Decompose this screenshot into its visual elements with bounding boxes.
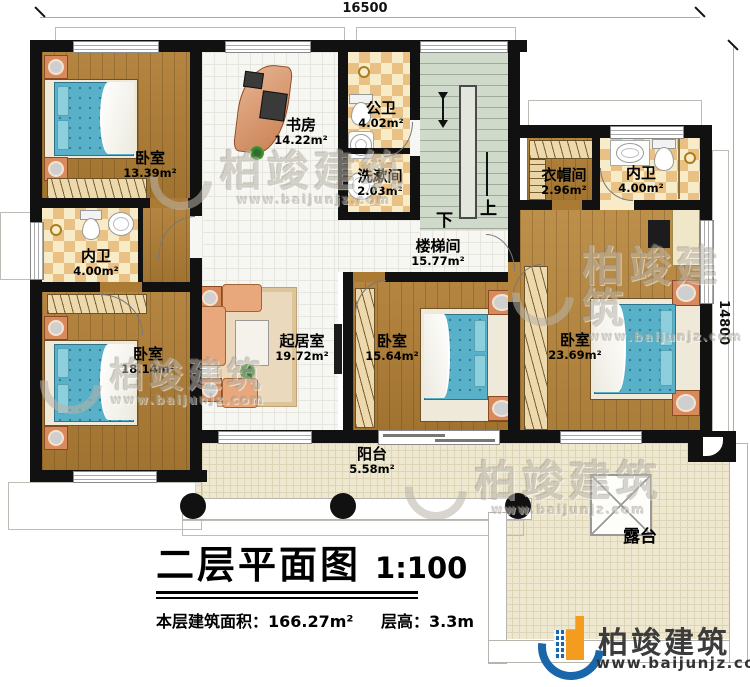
pillow xyxy=(57,120,69,150)
ceiling-lamp xyxy=(50,224,62,236)
window xyxy=(560,431,642,444)
nightstand xyxy=(44,426,68,450)
room-label-cloakroom: 衣帽间 2.96m² xyxy=(526,166,602,198)
balcony-column xyxy=(505,493,531,519)
room-label-study: 书房 14.22m² xyxy=(263,116,339,148)
wall xyxy=(138,208,143,282)
title-underline xyxy=(156,591,418,599)
ceiling-lamp xyxy=(684,152,696,164)
nightstand xyxy=(672,390,700,416)
eave-outline xyxy=(528,100,702,126)
balcony-parapet xyxy=(182,498,532,520)
room-label-bedroom-right: 卧室 23.69m² xyxy=(535,331,615,363)
dimension-tick xyxy=(694,6,705,17)
pillow xyxy=(57,348,69,378)
window xyxy=(218,431,312,444)
plant xyxy=(250,146,264,160)
plan-title: 二层平面图 xyxy=(156,543,361,587)
stair-arrow-stem xyxy=(486,152,488,196)
wall xyxy=(190,52,202,470)
window xyxy=(225,41,311,53)
window-bay xyxy=(0,212,31,280)
door-opening xyxy=(600,200,634,210)
window xyxy=(700,220,714,304)
room-label-ensuite-left: 内卫 4.00m² xyxy=(58,247,134,279)
logo-building-icon xyxy=(554,630,565,660)
room-label-bedroom-middle: 卧室 15.64m² xyxy=(354,332,430,364)
room-label-public-bath: 公卫 4.02m² xyxy=(343,99,419,131)
room-label-balcony: 阳台 5.58m² xyxy=(334,445,410,477)
room-label-stairwell: 楼梯间 15.77m² xyxy=(400,237,476,269)
door-opening xyxy=(552,200,582,210)
stair-up-label: 上 xyxy=(480,194,497,219)
wall xyxy=(343,272,353,430)
room-label-terrace: 露台 xyxy=(602,527,678,547)
toilet xyxy=(82,218,100,240)
ceiling-lamp xyxy=(358,66,370,78)
sink xyxy=(616,143,644,163)
balcony-column xyxy=(330,493,356,519)
company-website: www.baijunjz.com xyxy=(596,654,750,672)
tv-cabinet xyxy=(672,208,700,266)
window xyxy=(73,471,157,483)
company-logo: 柏竣建筑 www.baijunjz.com xyxy=(536,606,746,682)
window xyxy=(30,222,44,280)
stair-arrow-down-icon xyxy=(438,120,448,128)
pillow xyxy=(57,86,69,116)
wardrobe xyxy=(47,178,147,200)
room-label-washroom: 洗漱间 2.03m² xyxy=(340,167,420,199)
pillow xyxy=(474,355,486,387)
bed-sheet xyxy=(100,82,134,154)
room-label-bedroom-top-left: 卧室 13.39m² xyxy=(112,149,188,181)
pillow xyxy=(660,350,673,386)
pillow xyxy=(660,310,673,346)
dimension-width: 16500 xyxy=(330,1,400,16)
armchair xyxy=(222,378,258,408)
loveseat xyxy=(222,284,262,312)
nightstand xyxy=(672,280,700,306)
wall xyxy=(508,40,520,443)
stair-railing xyxy=(459,85,477,219)
plan-scale: 1:100 xyxy=(375,551,467,585)
nightstand xyxy=(44,55,68,79)
dimension-line-top xyxy=(40,17,700,18)
room-label-ensuite-right: 内卫 4.00m² xyxy=(603,164,679,196)
room-label-bedroom-bottom-left: 卧室 18.14m² xyxy=(110,345,186,377)
door-opening xyxy=(100,282,142,292)
eave-outline xyxy=(712,150,729,444)
pillow xyxy=(57,384,69,414)
floor-plan-canvas: 16500 14800 xyxy=(0,0,750,687)
laptop xyxy=(243,71,264,89)
clothes-rack xyxy=(529,140,593,159)
dimension-height: 14800 xyxy=(716,300,731,374)
sliding-door xyxy=(378,430,500,445)
eave-outline xyxy=(8,482,202,530)
plant xyxy=(240,364,255,379)
plan-stats: 本层建筑面积：166.27m² 层高：3.3m xyxy=(156,608,486,632)
sink xyxy=(108,212,134,236)
room-label-living-room: 起居室 19.72m² xyxy=(262,332,342,364)
window xyxy=(73,41,159,53)
window xyxy=(420,41,508,53)
dimension-tick xyxy=(34,6,45,17)
tv xyxy=(648,220,670,248)
door-opening xyxy=(150,198,188,208)
balcony-column xyxy=(180,493,206,519)
stair-arrow-stem xyxy=(442,98,444,122)
pillow xyxy=(474,320,486,352)
stair-down-label: 下 xyxy=(436,206,453,231)
window xyxy=(610,126,684,139)
wall xyxy=(338,212,420,220)
title-block: 二层平面图1:100 本层建筑面积：166.27m² 层高：3.3m xyxy=(156,534,486,632)
nightstand xyxy=(44,316,68,340)
